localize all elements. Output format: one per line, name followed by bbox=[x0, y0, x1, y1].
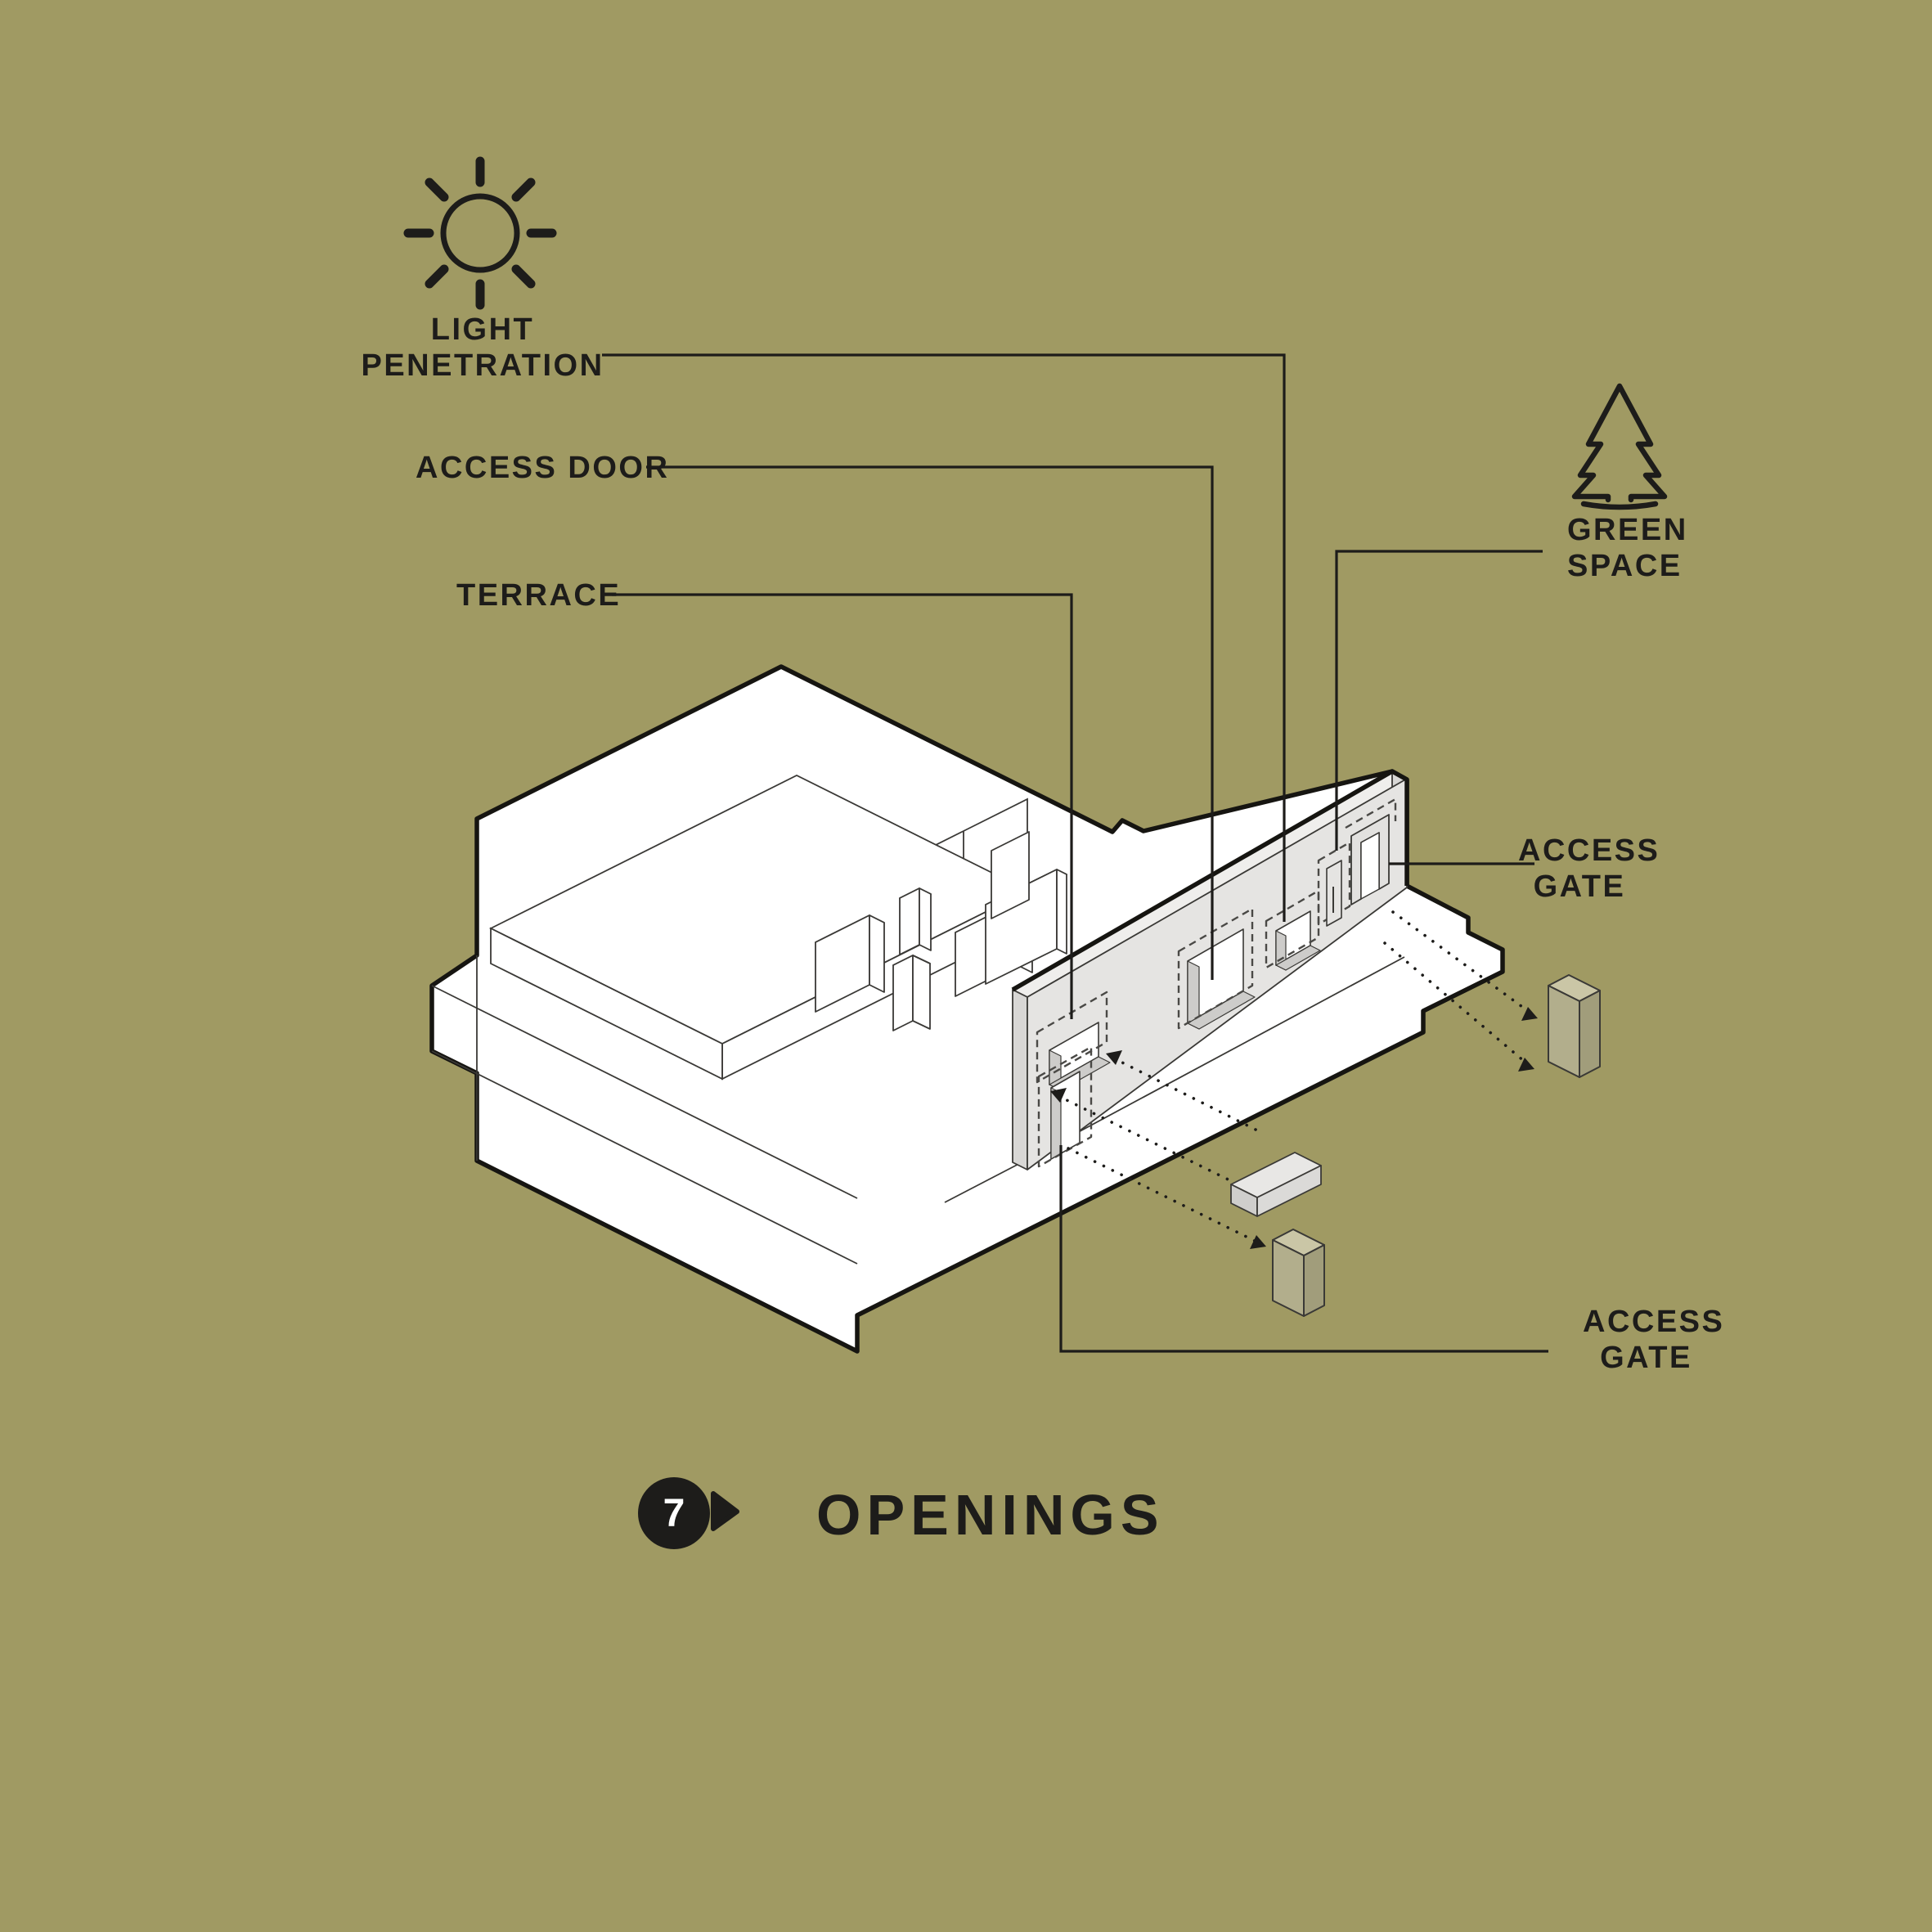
axonometric-drawing bbox=[0, 0, 1932, 1932]
step-number: 7 bbox=[663, 1491, 685, 1536]
label-light-penetration: LIGHTPENETRATION bbox=[352, 312, 613, 384]
label-access-door: ACCESS DOOR bbox=[416, 450, 669, 486]
badge-arrow-icon bbox=[713, 1494, 737, 1529]
bench-volume bbox=[1231, 1152, 1321, 1216]
label-terrace: TERRACE bbox=[456, 577, 621, 613]
wall-near-side-face bbox=[1013, 990, 1027, 1170]
sun-icon bbox=[408, 161, 552, 305]
gate-pillar-right bbox=[1548, 975, 1600, 1077]
label-access-gate-bottom: ACCESSGATE bbox=[1583, 1304, 1710, 1376]
gate-pillar-bottom bbox=[1273, 1229, 1324, 1316]
openings-diagram-page: LIGHTPENETRATION ACCESS DOOR TERRACE GRE… bbox=[0, 0, 1932, 1932]
label-green-space: GREENSPACE bbox=[1567, 512, 1670, 584]
step-number-badge: 7 bbox=[638, 1477, 710, 1549]
building-mass bbox=[432, 667, 1503, 1351]
page-title: OPENINGS bbox=[816, 1482, 1165, 1548]
pine-tree-icon bbox=[1575, 386, 1665, 507]
label-access-gate-right: ACCESSGATE bbox=[1518, 833, 1641, 905]
